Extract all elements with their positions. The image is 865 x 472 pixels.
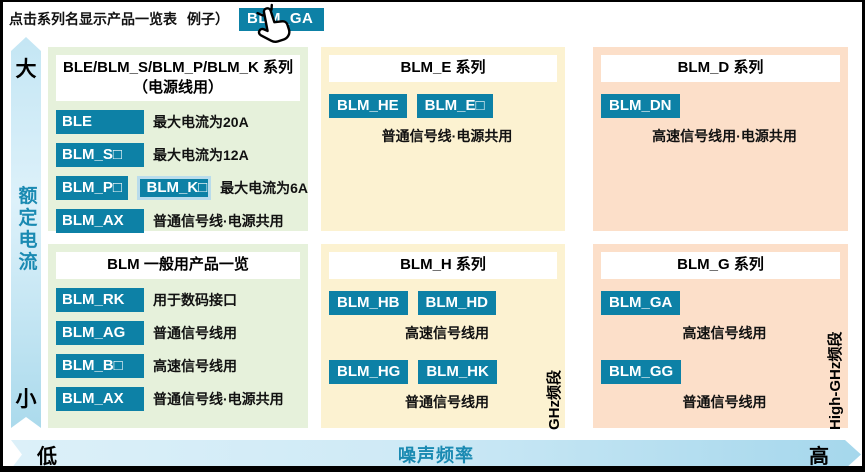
product-row: BLM_S□ 最大电流为12A <box>56 143 308 167</box>
panel-title-line2: （电源线用） <box>56 78 300 98</box>
series-button-blm-ga[interactable]: BLM_GA <box>601 291 680 315</box>
group-caption: 普通信号线用 <box>329 392 565 412</box>
panel-title: BLM_E 系列 <box>329 55 557 82</box>
header: 点击系列名显示产品一览表 例子） BLM_GA <box>9 8 324 30</box>
series-button-blm-e[interactable]: BLM_E□ <box>417 94 493 118</box>
group-caption: 高速信号线用·电源共用 <box>601 126 848 146</box>
row-desc: 普通信号线用 <box>153 323 237 343</box>
group-caption: 高速信号线用 <box>601 323 848 343</box>
button-group: BLM_HE BLM_E□ 普通信号线·电源共用 <box>329 94 565 146</box>
series-button-blm-he[interactable]: BLM_HE <box>329 94 407 118</box>
row-desc: 最大电流为6A <box>220 178 308 198</box>
high-ghz-band-label: High-GHz频段 <box>827 332 845 430</box>
row-desc: 最大电流为12A <box>153 145 249 165</box>
tap-hand-cursor-icon <box>249 3 295 49</box>
product-row: BLM_AG 普通信号线用 <box>56 321 308 345</box>
button-group: BLM_GA 高速信号线用 <box>601 291 848 343</box>
header-instruction: 点击系列名显示产品一览表 <box>9 9 177 29</box>
series-button-blm-ag[interactable]: BLM_AG <box>56 321 144 345</box>
panel-title: BLE/BLM_S/BLM_P/BLM_K 系列 （电源线用） <box>56 55 300 101</box>
group-caption: 普通信号线·电源共用 <box>329 126 565 146</box>
x-axis-min-label: 低 <box>37 439 57 468</box>
series-button-blm-dn[interactable]: BLM_DN <box>601 94 680 118</box>
group-caption: 高速信号线用 <box>329 323 565 343</box>
panel-blm-d-series: BLM_D 系列 BLM_DN 高速信号线用·电源共用 <box>593 47 848 231</box>
button-group: BLM_DN 高速信号线用·电源共用 <box>601 94 848 146</box>
panel-title-line1: BLE/BLM_S/BLM_P/BLM_K 系列 <box>56 58 300 78</box>
product-selection-chart: 点击系列名显示产品一览表 例子） BLM_GA 大 额定电流 小 低 噪声频率 … <box>0 0 865 472</box>
series-button-blm-hb[interactable]: BLM_HB <box>329 291 408 315</box>
series-button-blm-s[interactable]: BLM_S□ <box>56 143 144 167</box>
panel-blm-g-series: BLM_G 系列 BLM_GA 高速信号线用 BLM_GG 普通信号线用 <box>593 244 848 428</box>
series-button-ble[interactable]: BLE <box>56 110 144 134</box>
button-group: BLM_HB BLM_HD 高速信号线用 <box>329 291 565 343</box>
x-axis-arrow: 低 噪声频率 高 <box>11 440 861 469</box>
panel-blm-e-series: BLM_E 系列 BLM_HE BLM_E□ 普通信号线·电源共用 <box>321 47 565 231</box>
group-caption: 普通信号线用 <box>601 392 848 412</box>
series-button-blm-p[interactable]: BLM_P□ <box>56 176 128 200</box>
row-desc: 普通信号线·电源共用 <box>153 389 284 409</box>
y-axis-arrow: 大 额定电流 小 <box>11 37 41 428</box>
y-axis-max-label: 大 <box>11 53 41 83</box>
series-button-blm-ax[interactable]: BLM_AX <box>56 387 144 411</box>
row-desc: 普通信号线·电源共用 <box>153 211 284 231</box>
product-row: BLM_AX 普通信号线·电源共用 <box>56 209 308 233</box>
row-desc: 高速信号线用 <box>153 356 237 376</box>
series-button-blm-b[interactable]: BLM_B□ <box>56 354 144 378</box>
panel-title: BLM_H 系列 <box>329 252 557 279</box>
series-button-blm-ax[interactable]: BLM_AX <box>56 209 144 233</box>
x-axis-max-label: 高 <box>809 439 829 468</box>
button-group: BLM_GG 普通信号线用 <box>601 360 848 412</box>
row-desc: 用于数码接口 <box>153 290 237 310</box>
product-row: BLM_AX 普通信号线·电源共用 <box>56 387 308 411</box>
header-example-prefix: 例子） <box>187 9 229 29</box>
panel-blm-h-series: BLM_H 系列 BLM_HB BLM_HD 高速信号线用 BLM_HG BLM… <box>321 244 565 428</box>
x-axis-title: 噪声频率 <box>398 441 474 467</box>
series-button-blm-k[interactable]: BLM_K□ <box>137 176 211 200</box>
panel-title: BLM_G 系列 <box>601 252 840 279</box>
series-button-blm-gg[interactable]: BLM_GG <box>601 360 681 384</box>
panel-general-series: BLM 一般用产品一览 BLM_RK 用于数码接口 BLM_AG 普通信号线用 … <box>48 244 308 428</box>
product-row: BLM_RK 用于数码接口 <box>56 288 308 312</box>
y-axis-title: 额定电流 <box>13 185 40 273</box>
panel-title: BLM 一般用产品一览 <box>56 252 300 279</box>
series-button-blm-hd[interactable]: BLM_HD <box>418 291 497 315</box>
series-button-blm-rk[interactable]: BLM_RK <box>56 288 144 312</box>
panel-power-series: BLE/BLM_S/BLM_P/BLM_K 系列 （电源线用） BLE 最大电流… <box>48 47 308 231</box>
panel-title: BLM_D 系列 <box>601 55 840 82</box>
y-axis-min-label: 小 <box>11 383 41 413</box>
button-group: BLM_HG BLM_HK 普通信号线用 <box>329 360 565 412</box>
row-desc: 最大电流为20A <box>153 112 249 132</box>
series-button-blm-hk[interactable]: BLM_HK <box>418 360 497 384</box>
product-row: BLE 最大电流为20A <box>56 110 308 134</box>
series-button-blm-hg[interactable]: BLM_HG <box>329 360 408 384</box>
ghz-band-label: GHz频段 <box>546 370 564 430</box>
product-row: BLM_P□ BLM_K□ 最大电流为6A <box>56 176 308 200</box>
product-row: BLM_B□ 高速信号线用 <box>56 354 308 378</box>
